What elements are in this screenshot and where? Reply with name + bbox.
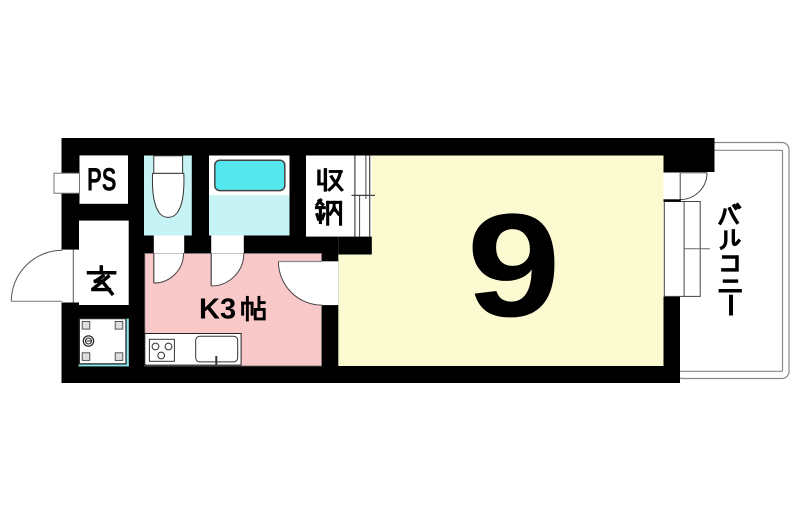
- svg-text:K3: K3: [199, 293, 236, 325]
- svg-text:PS: PS: [87, 162, 117, 198]
- svg-text:9: 9: [467, 183, 561, 347]
